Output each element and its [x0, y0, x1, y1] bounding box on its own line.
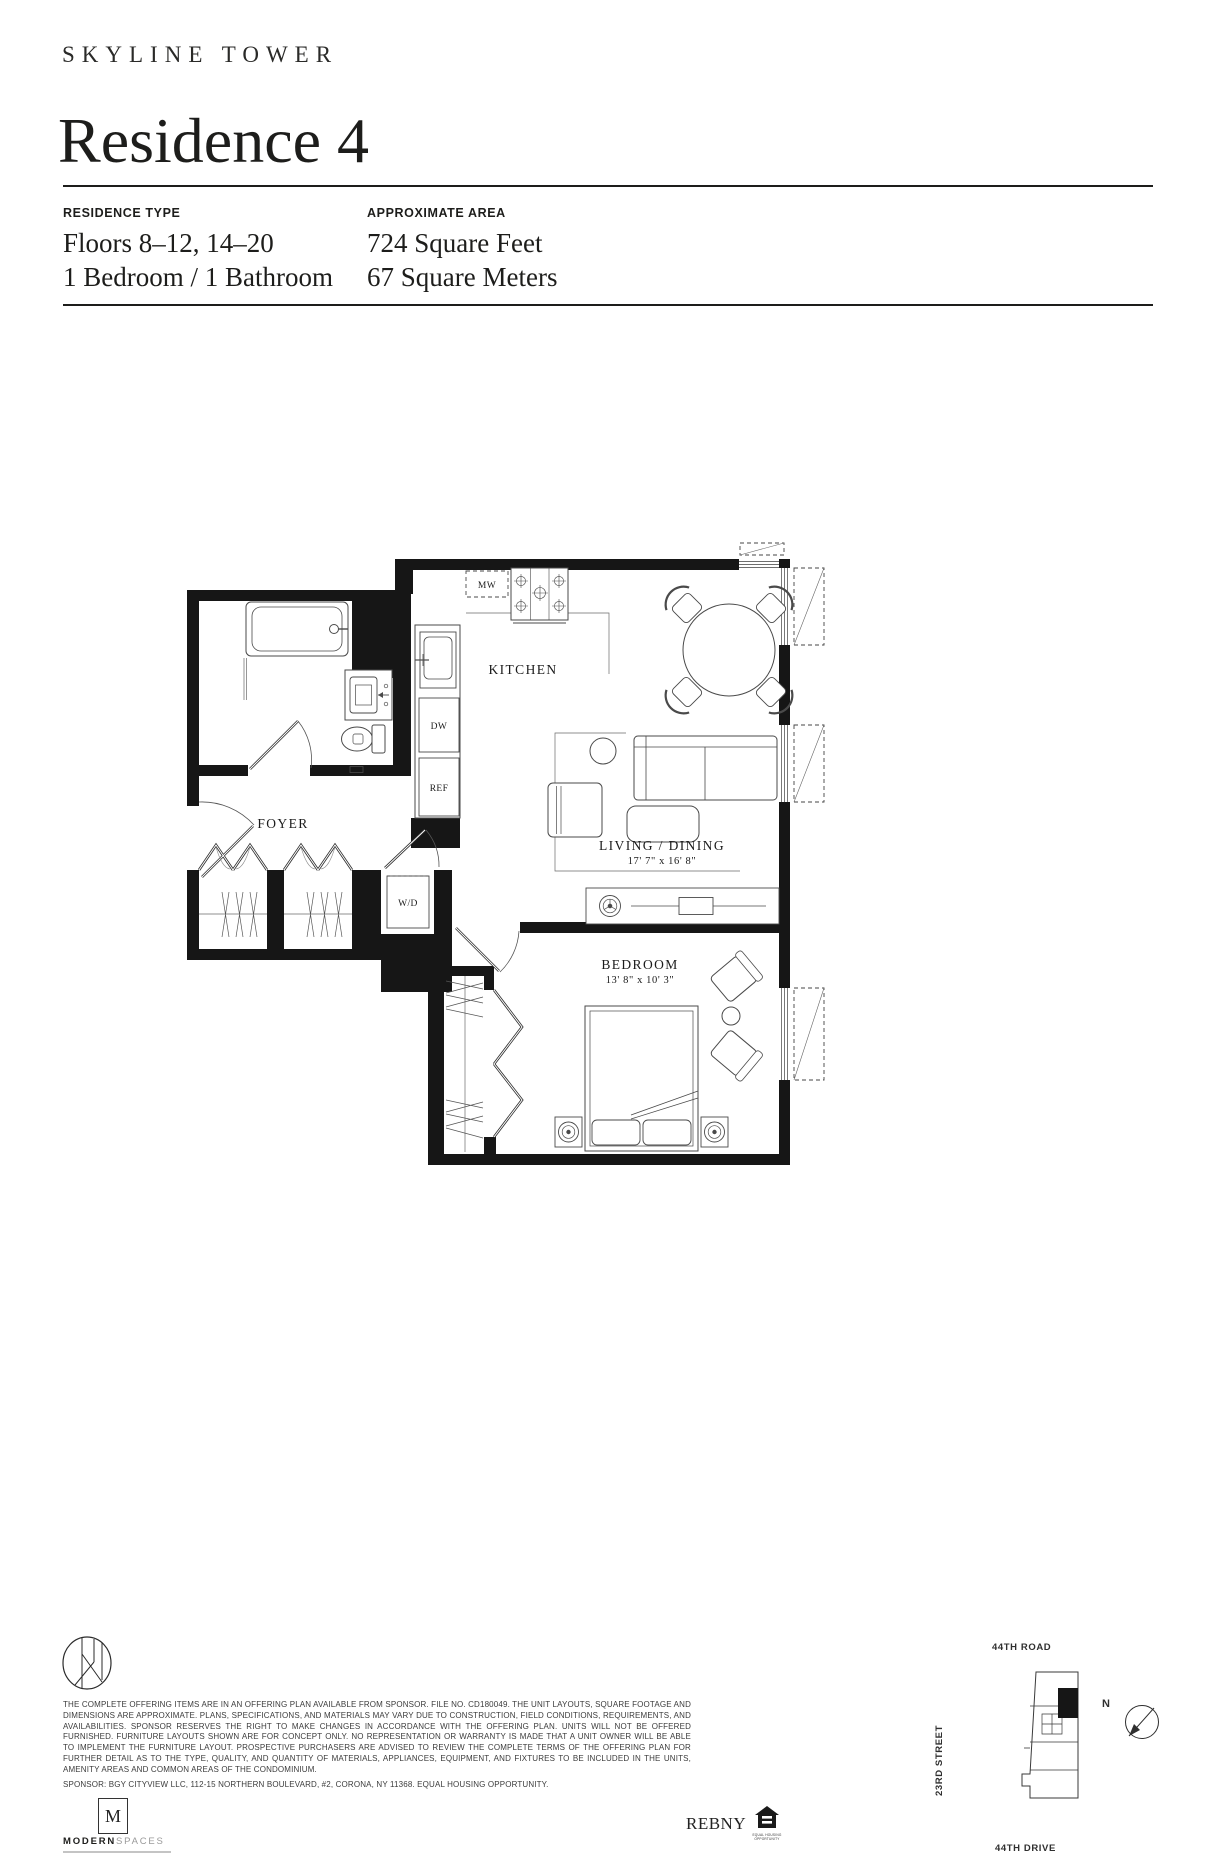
bifold-door-icon [494, 990, 522, 1137]
washer-dryer-label: W/D [398, 899, 418, 909]
media-console-icon [586, 888, 779, 924]
map-road-bottom-label: 44TH DRIVE [995, 1843, 1056, 1854]
north-label: N [1102, 1698, 1110, 1710]
skyline-tower-logo-icon [60, 1634, 114, 1692]
speaker-icon [559, 1122, 579, 1142]
residence-floors: Floors 8–12, 14–20 [63, 226, 333, 260]
tv-icon [679, 898, 713, 915]
kitchen-sink-icon [415, 632, 456, 688]
sponsor-line: SPONSOR: BGY CITYVIEW LLC, 112-15 NORTHE… [63, 1780, 691, 1789]
compass-icon: N [1098, 1690, 1172, 1752]
dining-table-icon [683, 604, 775, 696]
divider-rule-top [63, 185, 1153, 187]
equal-housing-logo: EQUAL HOUSING OPPORTUNITY [752, 1806, 782, 1841]
divider-rule-bottom [63, 304, 1153, 306]
residence-location-marker [1058, 1688, 1078, 1718]
side-table-icon [722, 1007, 740, 1025]
bedroom-dims: 13' 8" x 10' 3" [606, 975, 675, 986]
kitchen-label: KITCHEN [488, 662, 557, 677]
rebny-logo: REBNY [686, 1814, 746, 1834]
bedroom-chair-icon [708, 1028, 763, 1083]
bifold-door-icon [284, 845, 352, 870]
floorplan: KITCHEN FOYER LIVING / DINING 17' 7" x 1… [182, 540, 842, 1170]
map-road-top-label: 44TH ROAD [992, 1642, 1051, 1653]
modern-spaces-logo: MODERNSPACES [63, 1836, 165, 1847]
residence-type-value: Floors 8–12, 14–20 1 Bedroom / 1 Bathroo… [63, 226, 333, 294]
dining-set [660, 581, 799, 720]
speaker-icon [600, 896, 621, 917]
brochure-page: SKYLINE TOWER Residence 4 RESIDENCE TYPE… [0, 0, 1216, 1867]
area-sqft: 724 Square Feet [367, 226, 557, 260]
area-sqm: 67 Square Meters [367, 260, 557, 294]
residence-bedbath: 1 Bedroom / 1 Bathroom [63, 260, 333, 294]
modern-spaces-light: SPACES [116, 1836, 165, 1847]
bifold-door-icon [199, 845, 267, 870]
page-title: Residence 4 [58, 104, 369, 178]
microwave-label: MW [478, 581, 496, 591]
living-room [548, 736, 779, 924]
dishwasher-label: DW [431, 722, 448, 732]
bedroom-label: BEDROOM [601, 957, 678, 972]
bathtub-icon [246, 602, 348, 656]
residence-type-label: RESIDENCE TYPE [63, 206, 180, 220]
equal-housing-icon [755, 1806, 779, 1828]
offering-disclaimer: THE COMPLETE OFFERING ITEMS ARE IN AN OF… [63, 1700, 691, 1776]
bedroom-chair-icon [708, 950, 763, 1005]
pillow-icon [643, 1120, 691, 1145]
sofa-icon [634, 736, 777, 800]
vanity-sink-icon [345, 670, 392, 720]
side-table-icon [590, 738, 616, 764]
modern-spaces-bold: MODERN [63, 1836, 116, 1847]
equal-housing-caption: EQUAL HOUSING OPPORTUNITY [752, 1833, 782, 1841]
modern-spaces-tagline [63, 1851, 171, 1853]
towel-bar-icon [244, 658, 247, 700]
map-street-left-label: 23RD STREET [934, 1686, 945, 1796]
site-plan-icon [990, 1664, 1082, 1812]
modern-spaces-mark: M [98, 1798, 128, 1834]
range-icon [511, 568, 568, 623]
coffee-table-icon [627, 806, 699, 842]
foyer-label: FOYER [257, 816, 308, 831]
speaker-icon [705, 1122, 725, 1142]
bifold-arcs [216, 847, 335, 869]
bed-icon [585, 1006, 698, 1151]
kitchen-fixtures [415, 568, 568, 818]
approximate-area-label: APPROXIMATE AREA [367, 206, 506, 220]
refrigerator-label: REF [430, 784, 449, 794]
approximate-area-value: 724 Square Feet 67 Square Meters [367, 226, 557, 294]
pillow-icon [592, 1120, 640, 1145]
living-dining-dims: 17' 7" x 16' 8" [628, 856, 697, 867]
building-brand: SKYLINE TOWER [62, 42, 338, 68]
living-dining-label: LIVING / DINING [599, 838, 725, 853]
armchair-icon [548, 783, 602, 837]
